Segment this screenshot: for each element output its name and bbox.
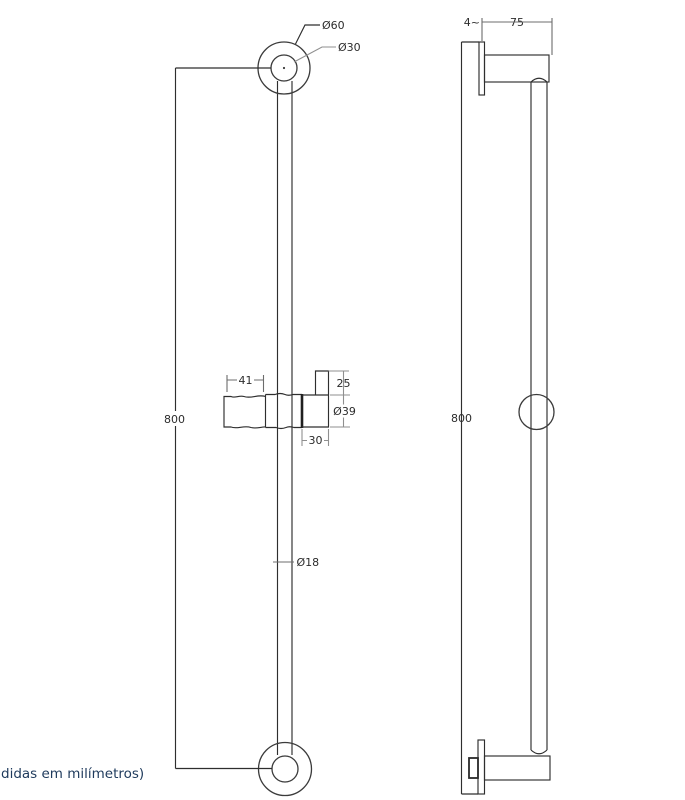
- center-mark: [283, 67, 285, 69]
- dim-label-handle-length: 41: [239, 374, 253, 387]
- dim-projection: 4~ 75: [464, 16, 552, 55]
- dim-bar-diameter: Ø18: [273, 556, 319, 569]
- side-view: 4~ 75: [451, 16, 554, 794]
- top-wall-mount-side: [479, 42, 549, 95]
- dim-height-front: 800: [162, 68, 272, 769]
- dim-label-holder-diameter: Ø39: [333, 405, 356, 418]
- dim-label-outer-diameter: Ø60: [322, 19, 345, 32]
- dim-holder-depth: 30: [302, 429, 329, 447]
- dim-handle-length: 41: [227, 374, 264, 392]
- dim-label-height-front: 800: [164, 413, 185, 426]
- holder-ring: [302, 395, 329, 427]
- holder-handle: [224, 396, 266, 428]
- slide-bar-front: [278, 81, 293, 755]
- slide-bar-side: [531, 78, 547, 754]
- dim-label-holder-depth: 30: [309, 434, 323, 447]
- bottom-mount-arm: [485, 756, 551, 780]
- dim-tab-height: 25: [329, 371, 351, 395]
- front-view: Ø60 Ø30: [162, 19, 361, 796]
- bottom-escutcheon-plate: [478, 740, 485, 794]
- units-note: didas em milímetros): [1, 766, 144, 782]
- dim-label-plate-thickness: 4~: [464, 16, 480, 29]
- technical-drawing-page: Ø60 Ø30: [0, 0, 685, 800]
- holder-tab: [316, 371, 329, 395]
- wall-anchor: [469, 758, 478, 778]
- top-escutcheon-plate: [479, 42, 485, 95]
- shower-holder-side: [519, 395, 554, 430]
- shower-slide-bar-drawing: Ø60 Ø30: [0, 0, 685, 800]
- dim-label-bar-diameter: Ø18: [297, 556, 320, 569]
- dim-label-inner-diameter: Ø30: [338, 41, 361, 54]
- bottom-wall-mount-side: [469, 740, 550, 794]
- holder-body: [266, 394, 303, 429]
- dim-holder-diameter: Ø39: [330, 395, 358, 427]
